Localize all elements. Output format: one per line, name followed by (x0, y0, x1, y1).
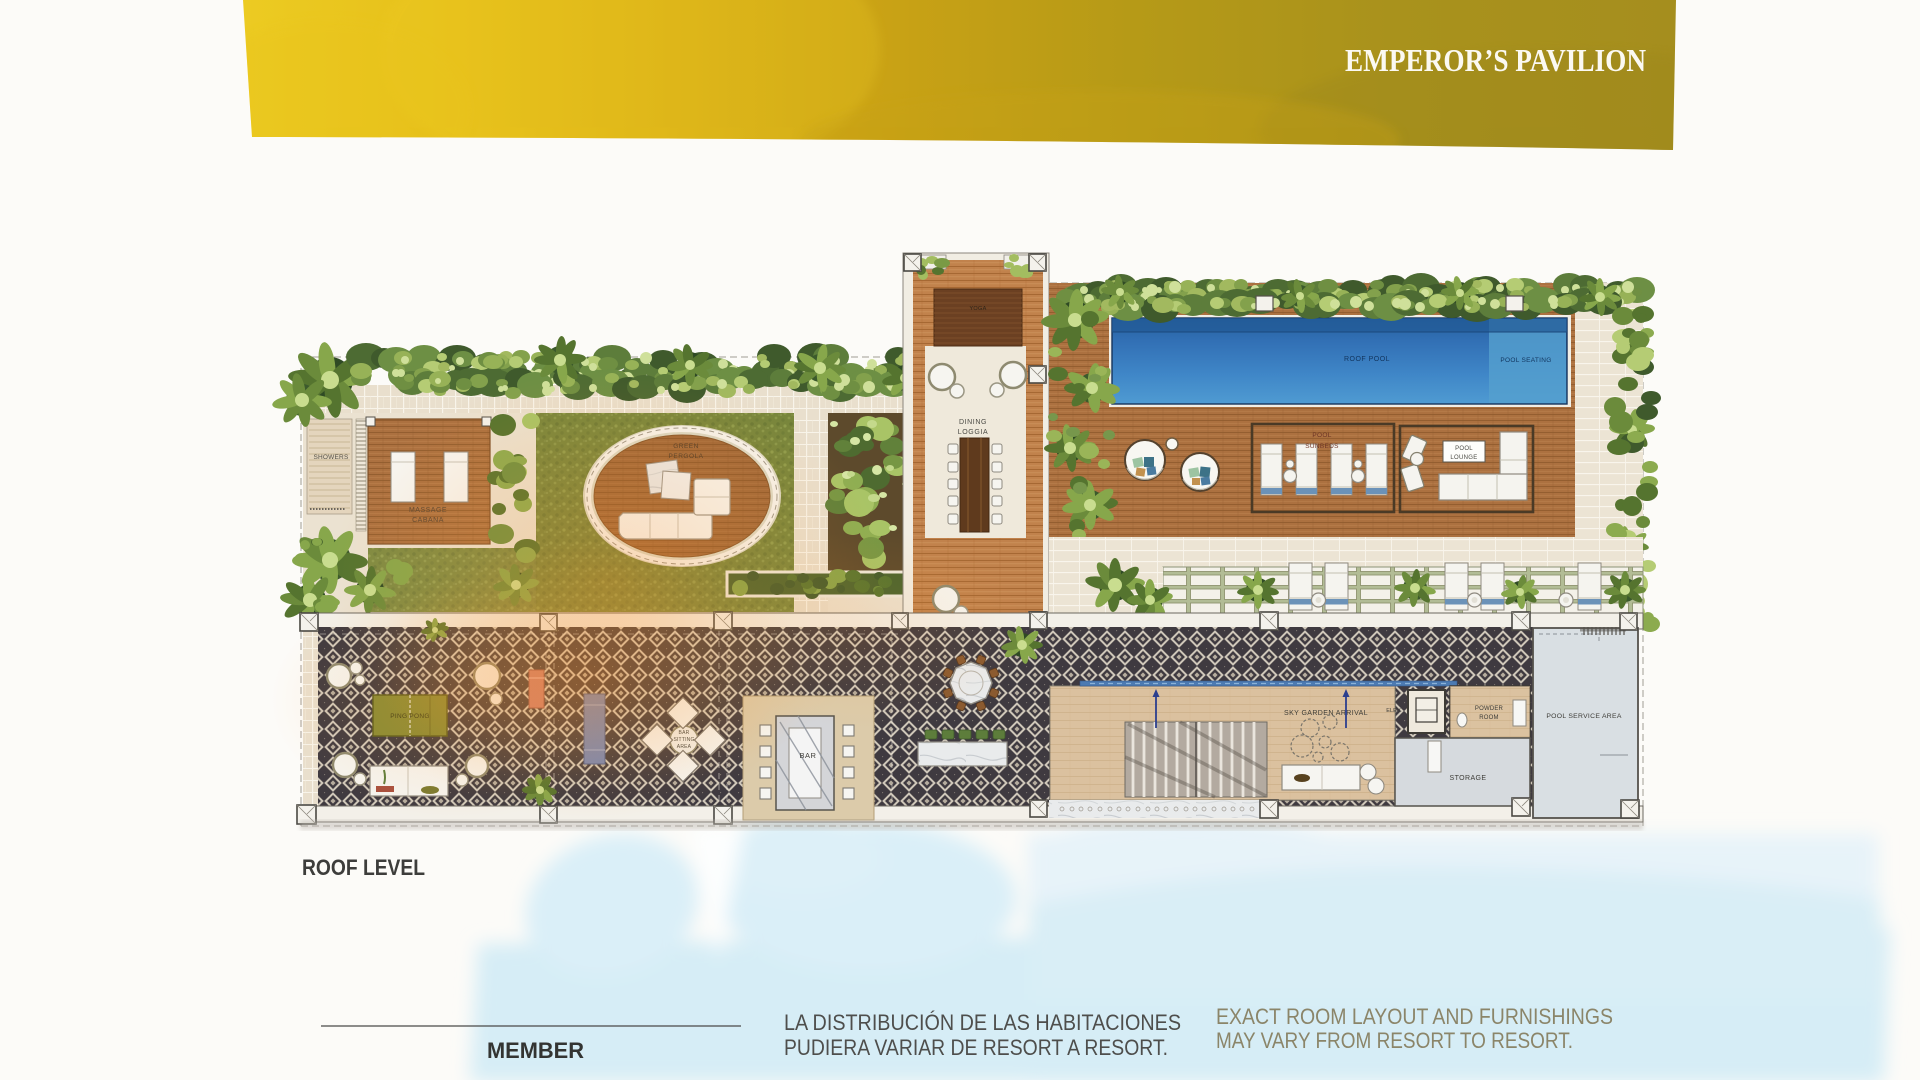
svg-text:PUDIERA VARIAR DE RESORT A RES: PUDIERA VARIAR DE RESORT A RESORT. (784, 1035, 1168, 1060)
svg-text:POOL SERVICE AREA: POOL SERVICE AREA (1546, 713, 1622, 720)
svg-text:POOL: POOL (1312, 432, 1331, 439)
svg-text:POOL: POOL (1455, 446, 1473, 452)
svg-text:DINING: DINING (959, 419, 987, 426)
svg-text:SUNBEDS: SUNBEDS (1305, 443, 1339, 450)
svg-text:ROOM: ROOM (1479, 715, 1498, 721)
svg-text:BAR: BAR (800, 751, 817, 760)
svg-text:ROOF LEVEL: ROOF LEVEL (302, 855, 425, 880)
svg-text:EXACT ROOM LAYOUT AND FURNISHI: EXACT ROOM LAYOUT AND FURNISHINGS (1216, 1004, 1613, 1029)
svg-text:EMPEROR’S PAVILION: EMPEROR’S PAVILION (1345, 42, 1646, 78)
svg-text:MEMBER: MEMBER (487, 1038, 584, 1063)
svg-text:LA DISTRIBUCIÓN DE LAS HABITAC: LA DISTRIBUCIÓN DE LAS HABITACIONES (784, 1010, 1181, 1035)
svg-text:YOGA: YOGA (969, 306, 986, 312)
svg-text:LOUNGE: LOUNGE (1450, 455, 1477, 461)
svg-text:POWDER: POWDER (1475, 706, 1504, 712)
svg-text:ELEV.: ELEV. (1386, 708, 1402, 714)
svg-text:SKY GARDEN ARRIVAL: SKY GARDEN ARRIVAL (1284, 710, 1368, 717)
svg-text:ROOF POOL: ROOF POOL (1344, 356, 1390, 363)
svg-text:MAY VARY FROM RESORT TO RESORT: MAY VARY FROM RESORT TO RESORT. (1216, 1028, 1573, 1053)
svg-text:STORAGE: STORAGE (1450, 775, 1487, 782)
svg-text:POOL SEATING: POOL SEATING (1500, 357, 1551, 364)
svg-text:LOGGIA: LOGGIA (958, 429, 988, 436)
svg-text:SHOWERS: SHOWERS (314, 454, 349, 461)
